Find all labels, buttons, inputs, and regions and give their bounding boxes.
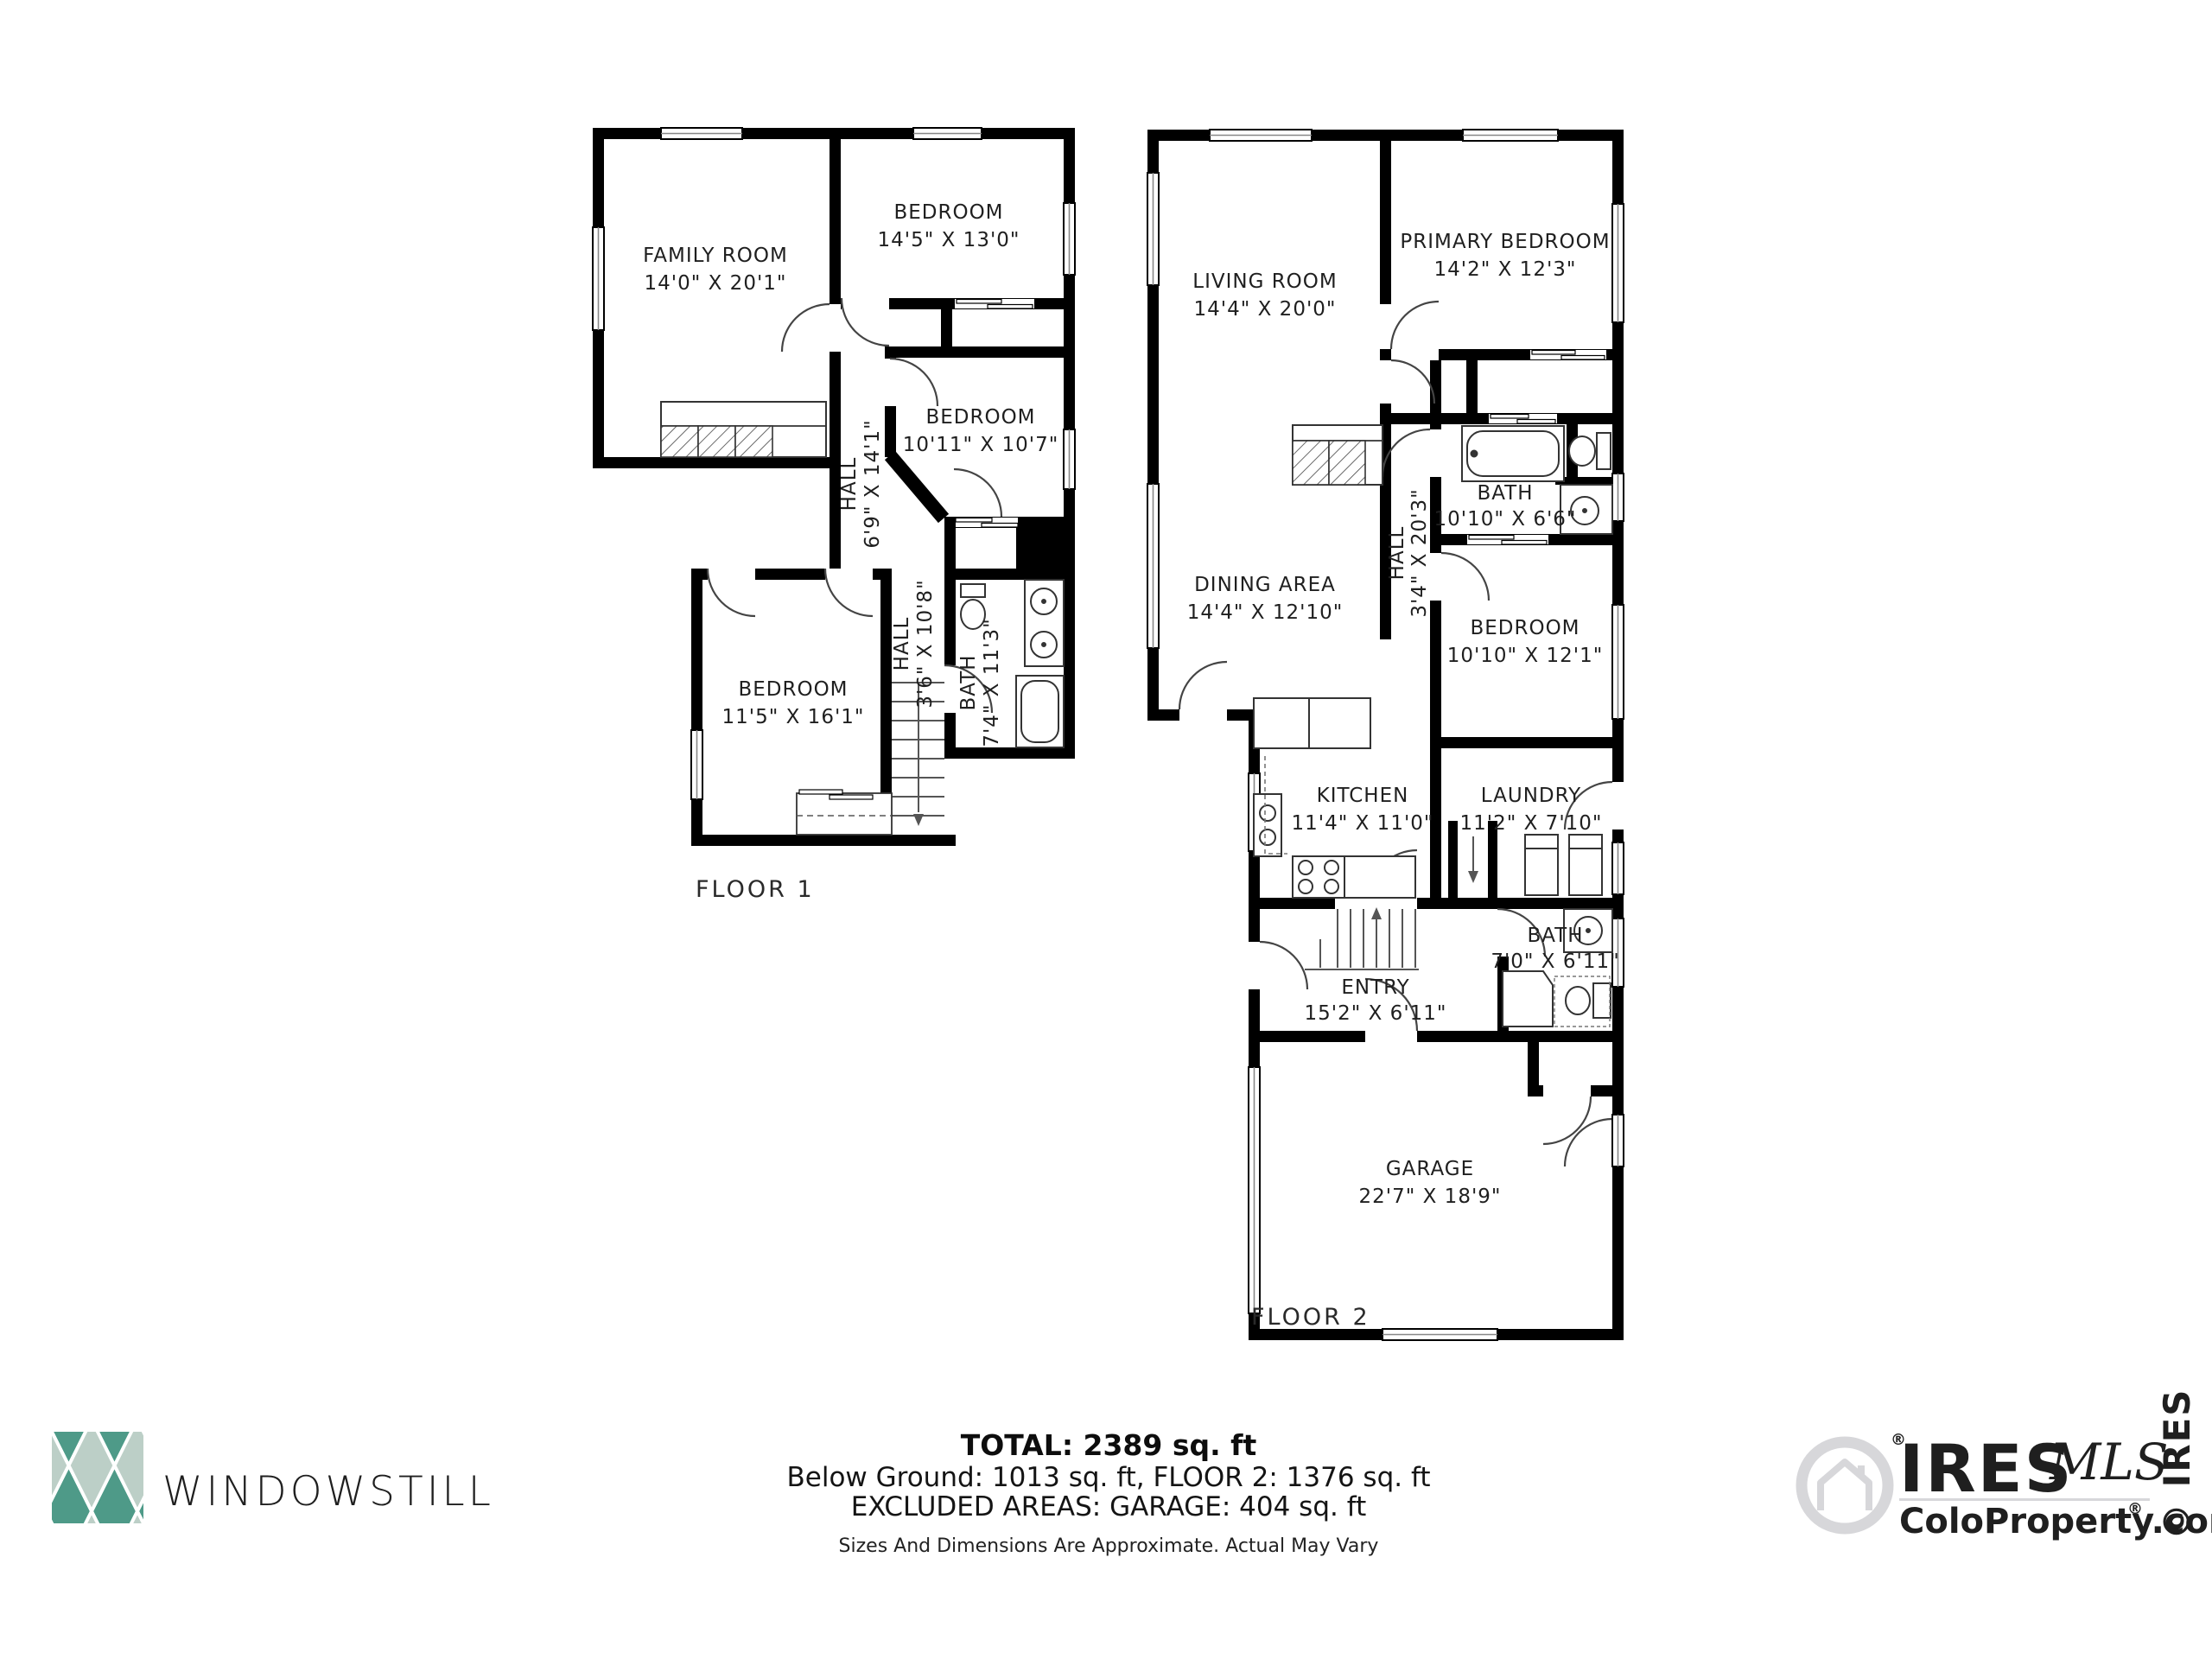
svg-text:14'4" X 12'10": 14'4" X 12'10" — [1187, 601, 1344, 624]
svg-text:14'5" X 13'0": 14'5" X 13'0" — [878, 229, 1020, 251]
floor2-plan: LIVING ROOM 14'4" X 20'0" PRIMARY BEDROO… — [1147, 130, 1624, 1340]
floor2-label: FLOOR 2 — [1251, 1304, 1370, 1331]
floorplan-svg: FAMILY ROOM 14'0" X 20'1" BEDROOM 14'5" … — [0, 0, 2212, 1659]
svg-text:7'0" X 6'11": 7'0" X 6'11" — [1491, 950, 1619, 973]
floor1-fireplace — [661, 402, 826, 457]
svg-text:PRIMARY BEDROOM: PRIMARY BEDROOM — [1400, 231, 1610, 253]
summary-breakdown: Below Ground: 1013 sq. ft, FLOOR 2: 1376… — [787, 1462, 1431, 1493]
floorplan-page: FAMILY ROOM 14'0" X 20'1" BEDROOM 14'5" … — [0, 0, 2212, 1659]
room-label-laundry: LAUNDRY 11'2" X 7'10" — [1460, 785, 1603, 835]
svg-text:BEDROOM: BEDROOM — [1470, 617, 1580, 639]
room-label-bedroom-c: BEDROOM 11'5" X 16'1" — [722, 678, 865, 728]
svg-text:7'4" X 11'3": 7'4" X 11'3" — [981, 618, 1003, 747]
svg-text:BEDROOM: BEDROOM — [893, 201, 1003, 224]
floor2-laundry-appliances — [1525, 835, 1602, 895]
ires-divider — [1899, 1498, 2150, 1501]
floor2-fireplace — [1293, 425, 1382, 485]
svg-text:10'10" X 12'1": 10'10" X 12'1" — [1447, 645, 1604, 667]
summary-total: TOTAL: 2389 sq. ft — [961, 1428, 1257, 1462]
room-label-hall-b: HALL 3'6" X 10'8" — [891, 579, 937, 708]
summary-disclaimer: Sizes And Dimensions Are Approximate. Ac… — [839, 1535, 1379, 1557]
room-label-primary-bedroom: PRIMARY BEDROOM 14'2" X 12'3" — [1400, 231, 1610, 281]
room-label-bedroom-f2: BEDROOM 10'10" X 12'1" — [1447, 617, 1604, 667]
ires-copyright-vertical: © IRES — [2156, 1388, 2198, 1540]
room-label-garage: GARAGE 22'7" X 18'9" — [1359, 1158, 1502, 1208]
family-room-name: FAMILY ROOM — [643, 245, 788, 267]
svg-text:14'2" X 12'3": 14'2" X 12'3" — [1434, 258, 1577, 281]
windowstill-wordmark: WINDOWSTILL — [162, 1468, 494, 1516]
svg-text:3'4" X 20'3": 3'4" X 20'3" — [1408, 488, 1431, 617]
room-label-entry: ENTRY 15'2" X 6'11" — [1305, 976, 1447, 1025]
svg-text:10'11" X 10'7": 10'11" X 10'7" — [903, 434, 1059, 456]
floor1-label: FLOOR 1 — [696, 876, 815, 903]
family-room-dims: 14'0" X 20'1" — [645, 272, 787, 295]
svg-text:22'7" X 18'9": 22'7" X 18'9" — [1359, 1185, 1502, 1208]
room-label-living-room: LIVING ROOM 14'4" X 20'0" — [1192, 270, 1338, 321]
svg-text:LIVING ROOM: LIVING ROOM — [1192, 270, 1338, 293]
floor1-plan: FAMILY ROOM 14'0" X 20'1" BEDROOM 14'5" … — [593, 128, 1075, 903]
svg-text:DINING AREA: DINING AREA — [1194, 574, 1336, 596]
ires-site-registered-mark: ® — [2127, 1500, 2143, 1518]
summary-block: TOTAL: 2389 sq. ft Below Ground: 1013 sq… — [787, 1428, 1431, 1557]
svg-text:14'4" X 20'0": 14'4" X 20'0" — [1194, 298, 1337, 321]
room-label-bedroom-b: BEDROOM 10'11" X 10'7" — [903, 406, 1059, 456]
svg-text:BATH: BATH — [1527, 925, 1583, 947]
room-label-kitchen: KITCHEN 11'4" X 11'0" — [1292, 785, 1434, 835]
svg-text:10'10" X 6'6": 10'10" X 6'6" — [1434, 508, 1577, 531]
svg-text:15'2" X 6'11": 15'2" X 6'11" — [1305, 1002, 1447, 1025]
svg-text:HALL: HALL — [891, 617, 913, 671]
svg-text:GARAGE: GARAGE — [1386, 1158, 1474, 1180]
room-label-family-room: FAMILY ROOM 14'0" X 20'1" — [643, 245, 788, 295]
room-label-bath-a: BATH 10'10" X 6'6" — [1434, 482, 1577, 531]
svg-text:KITCHEN: KITCHEN — [1317, 785, 1409, 807]
svg-text:ENTRY: ENTRY — [1341, 976, 1409, 999]
ires-mls-script: MLS — [2049, 1433, 2169, 1491]
room-label-dining-area: DINING AREA 14'4" X 12'10" — [1187, 574, 1344, 624]
svg-text:BATH: BATH — [1477, 482, 1533, 505]
room-label-bath-f1: BATH 7'4" X 11'3" — [957, 618, 1003, 747]
ires-house-icon — [1802, 1442, 1888, 1529]
room-label-bedroom-a: BEDROOM 14'5" X 13'0" — [878, 201, 1020, 251]
svg-text:BEDROOM: BEDROOM — [738, 678, 848, 701]
svg-text:BATH: BATH — [957, 654, 980, 710]
svg-text:6'9" X 14'1": 6'9" X 14'1" — [861, 419, 884, 548]
svg-text:LAUNDRY: LAUNDRY — [1481, 785, 1581, 807]
svg-text:BEDROOM: BEDROOM — [925, 406, 1035, 429]
svg-text:11'4" X 11'0": 11'4" X 11'0" — [1292, 812, 1434, 835]
ires-logo: ® IRES MLS ColoProperty.com ® © IRES — [1802, 1388, 2212, 1541]
floor1-bedroom-closet — [797, 790, 892, 835]
room-label-hall-f2: HALL 3'4" X 20'3" — [1386, 488, 1431, 617]
summary-excluded: EXCLUDED AREAS: GARAGE: 404 sq. ft — [851, 1491, 1367, 1522]
svg-text:3'6" X 10'8": 3'6" X 10'8" — [914, 579, 937, 708]
windowstill-logo: WINDOWSTILL — [52, 1432, 494, 1523]
windowstill-diamond-icon — [52, 1432, 143, 1523]
svg-text:11'2" X 7'10": 11'2" X 7'10" — [1460, 812, 1603, 835]
svg-text:11'5" X 16'1": 11'5" X 16'1" — [722, 706, 865, 728]
house-chimney-icon — [1858, 1465, 1865, 1476]
room-label-hall-a: HALL 6'9" X 14'1" — [838, 419, 884, 548]
svg-text:HALL: HALL — [1386, 526, 1408, 581]
ires-wordmark: IRES — [1899, 1430, 2073, 1507]
svg-text:HALL: HALL — [838, 457, 861, 512]
